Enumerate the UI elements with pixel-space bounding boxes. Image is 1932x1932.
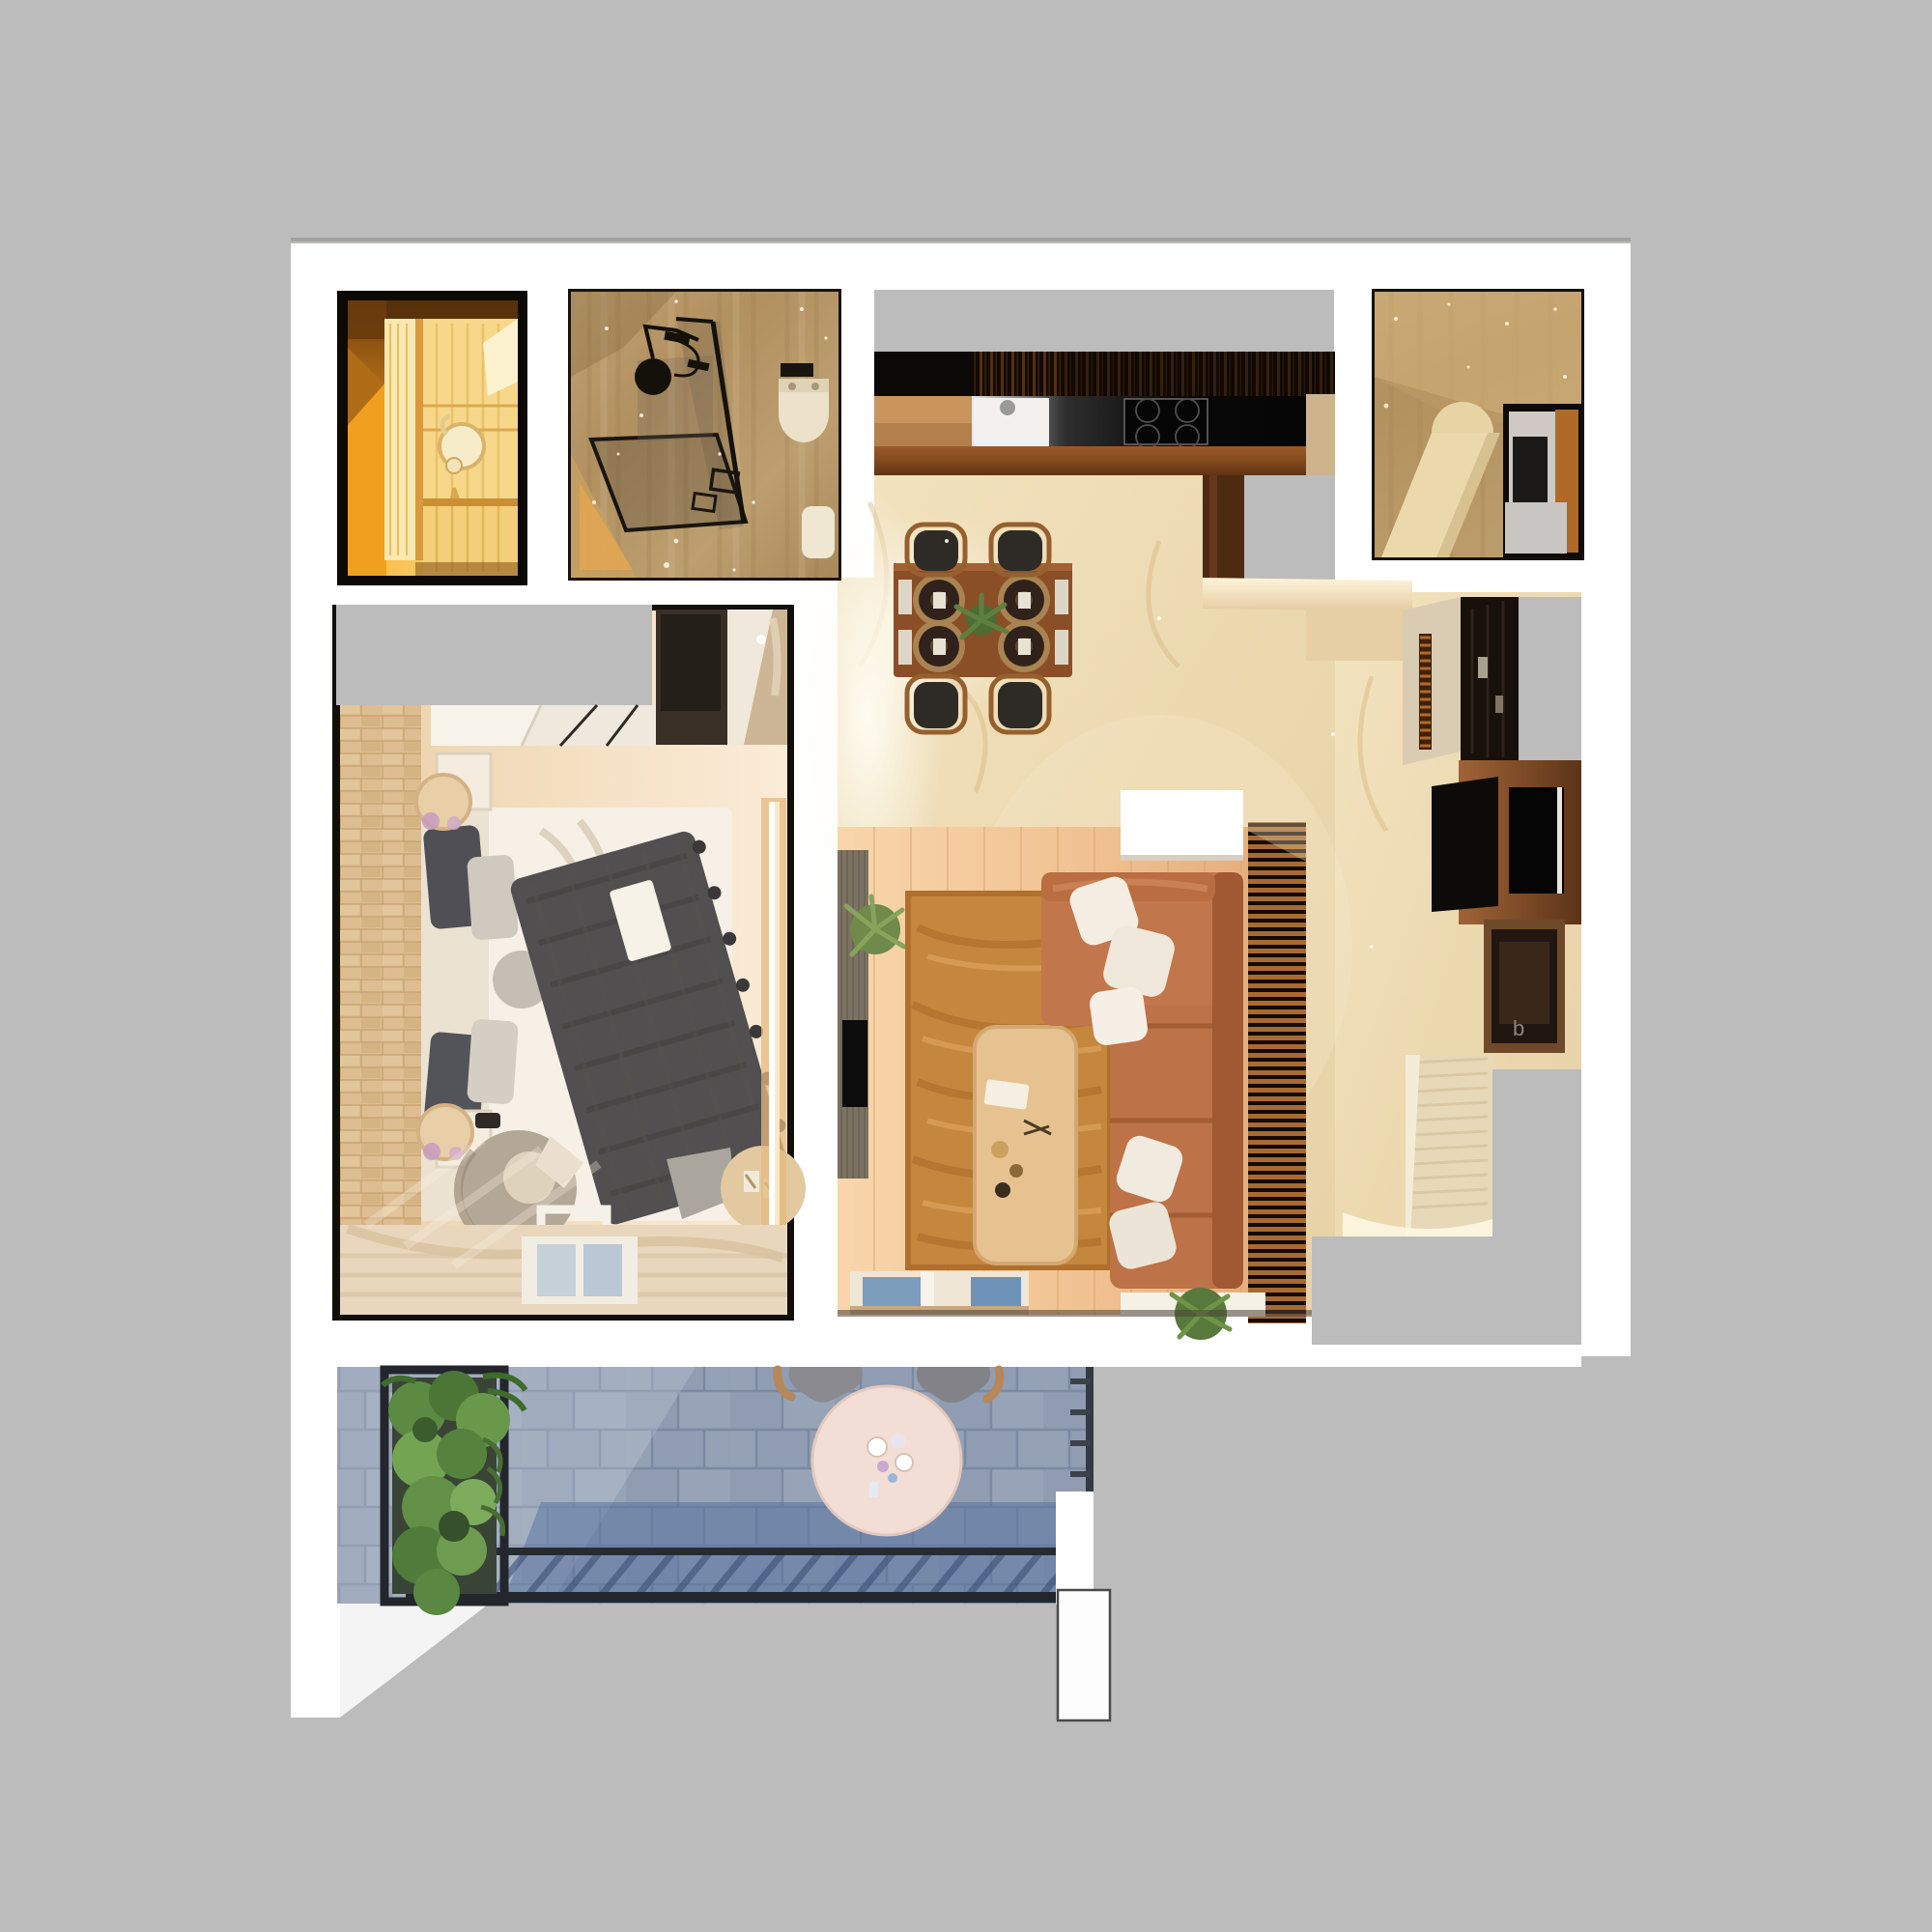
svg-text:b: b bbox=[1513, 1016, 1524, 1040]
